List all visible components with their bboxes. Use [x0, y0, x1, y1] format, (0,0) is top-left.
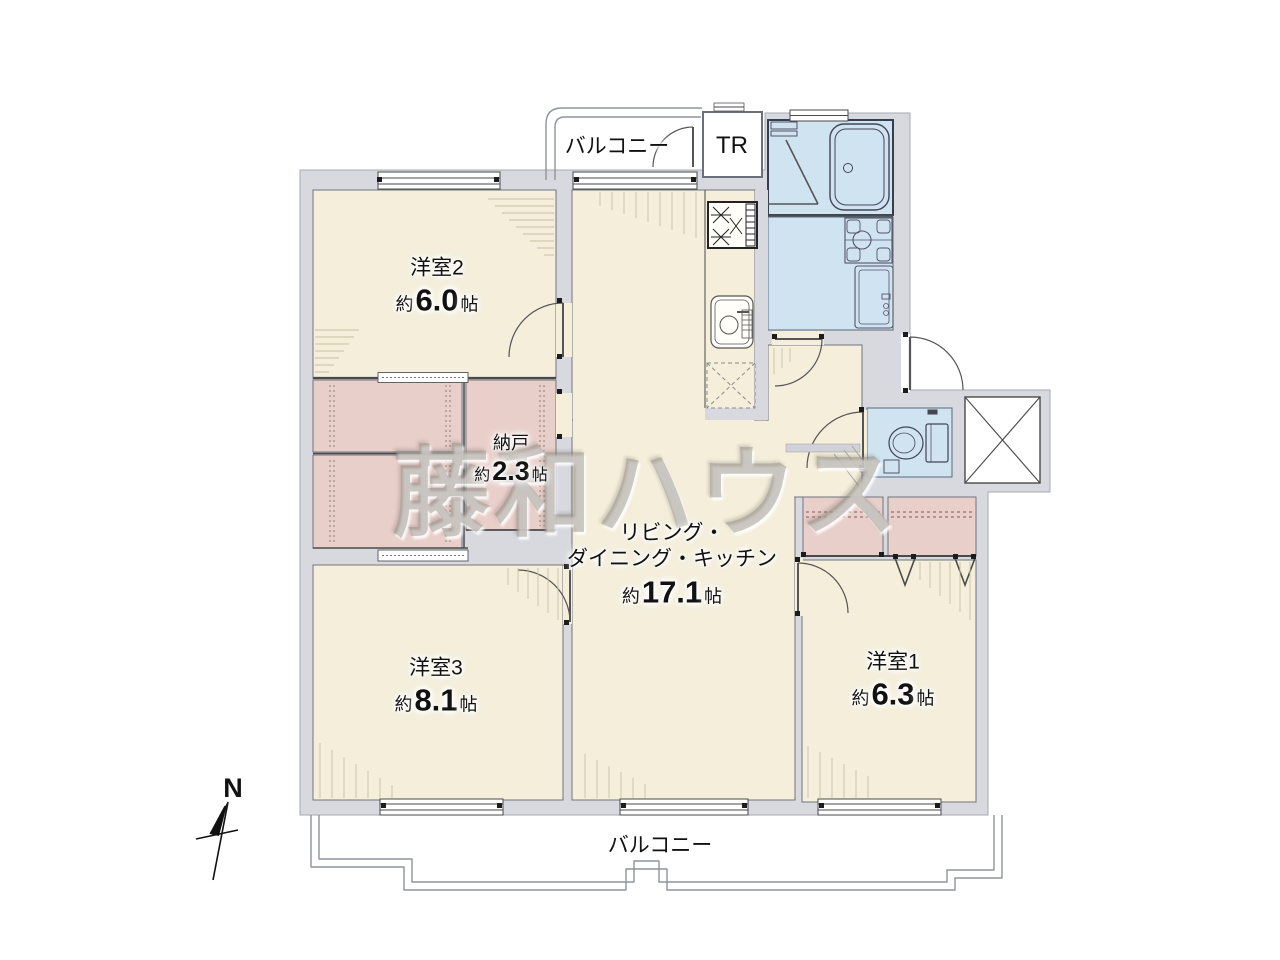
balcony-top-label: バルコニー	[565, 134, 670, 160]
room-name: 洋室3	[394, 656, 477, 682]
room-label-ldk: リビング・ ダイニング・キッチン 約17.1帖	[567, 520, 777, 611]
room-label-western2: 洋室2 約6.0帖	[395, 256, 478, 321]
balcony-bottom-label: バルコニー	[608, 833, 713, 859]
room-size: 約6.0帖	[395, 282, 478, 321]
room-name: 納戸	[474, 432, 548, 455]
room-name: 洋室2	[395, 256, 478, 282]
compass-north-label: N	[223, 772, 243, 806]
room-label-western1: 洋室1 約6.3帖	[851, 650, 934, 715]
room-label-storage: 納戸 約2.3帖	[474, 432, 548, 488]
room-size: 約6.3帖	[851, 676, 934, 715]
room-name-line2: ダイニング・キッチン	[567, 547, 777, 573]
trunk-room-label: TR	[716, 131, 748, 161]
stove-icon	[708, 202, 757, 248]
pipe-space	[965, 397, 1040, 483]
washroom-floor	[768, 217, 893, 330]
room-label-western3: 洋室3 約8.1帖	[394, 656, 477, 721]
room-size: 約17.1帖	[567, 573, 777, 612]
room-size: 約8.1帖	[394, 682, 477, 721]
floorplan-page: 藤和ハウス 洋室2 約6.0帖 納戸 約2.3帖 リビング・ ダイニング・キッチ…	[0, 0, 1280, 960]
room-name: 洋室1	[851, 650, 934, 676]
room-size: 約2.3帖	[474, 454, 548, 488]
compass-icon	[196, 801, 238, 880]
room-name-line1: リビング・	[567, 520, 777, 546]
kitchen-sink-icon	[711, 296, 753, 348]
